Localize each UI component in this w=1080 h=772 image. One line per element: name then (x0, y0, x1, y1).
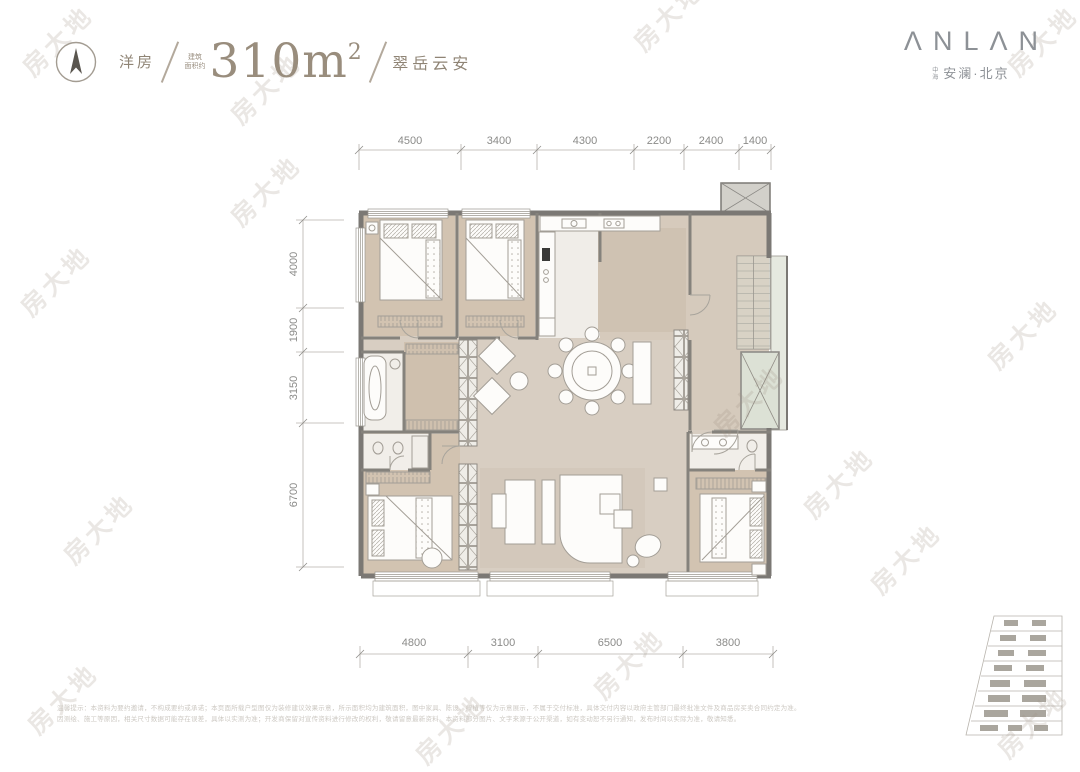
title-block: 洋房 建筑 面积约 310m2 翠岳云安 (55, 38, 472, 85)
dim-top-2: 4300 (573, 135, 597, 147)
dim-top-3: 2200 (647, 135, 671, 147)
disclaimer-line-1: 温馨提示：本资料为要约邀请，不构成要约或承诺；本页面所载户型图仅为装修建议效果示… (57, 705, 1007, 713)
dim-bottom-0: 4800 (402, 637, 426, 649)
area-value: 310m2 (210, 38, 363, 85)
elevator (741, 352, 779, 429)
brand-subtitle: 中海安澜·北京 (904, 63, 1038, 82)
console-table (633, 342, 651, 404)
dim-left-3: 6700 (288, 483, 300, 507)
plan-name-label: 翠岳云安 (392, 50, 472, 74)
staircase (737, 256, 770, 349)
divider-slash (161, 41, 179, 82)
divider-slash (369, 41, 387, 82)
dim-left-1: 1900 (288, 318, 300, 342)
brand-block: ΛNLΛN 中海安澜·北京 (904, 26, 1038, 82)
brand-logo: ΛNLΛN (904, 26, 1049, 57)
dim-top-4: 2400 (699, 135, 723, 147)
dim-bottom-1: 3100 (491, 637, 515, 649)
dim-left-2: 3150 (288, 376, 300, 400)
disclaimer-line-2: 因测绘、施工等原因，相关尺寸数据可能存在误差，具体以实测为准；开发商保留对宣传资… (57, 716, 1007, 724)
dim-top-0: 4500 (398, 135, 422, 147)
dim-left-0: 4000 (288, 252, 300, 276)
north-compass-icon (55, 41, 97, 83)
dim-bottom-2: 6500 (598, 637, 622, 649)
poster: 洋房 建筑 面积约 310m2 翠岳云安 ΛNLΛN 中海安澜·北京 (0, 0, 1080, 763)
property-type-label: 洋房 (119, 51, 155, 72)
dim-top-5: 1400 (743, 135, 767, 147)
floor-plan-drawing (0, 0, 1080, 763)
disclaimer: 温馨提示：本资料为要约邀请，不构成要约或承诺；本页面所载户型图仅为装修建议效果示… (57, 705, 1007, 727)
dim-top-1: 3400 (487, 135, 511, 147)
dim-bottom-3: 3800 (716, 637, 740, 649)
dining-table (548, 327, 636, 415)
area-superscript: 2 (348, 40, 363, 65)
brand-prefix: 中海 (932, 68, 940, 81)
area-prefix-label: 建筑 面积约 (185, 53, 206, 71)
